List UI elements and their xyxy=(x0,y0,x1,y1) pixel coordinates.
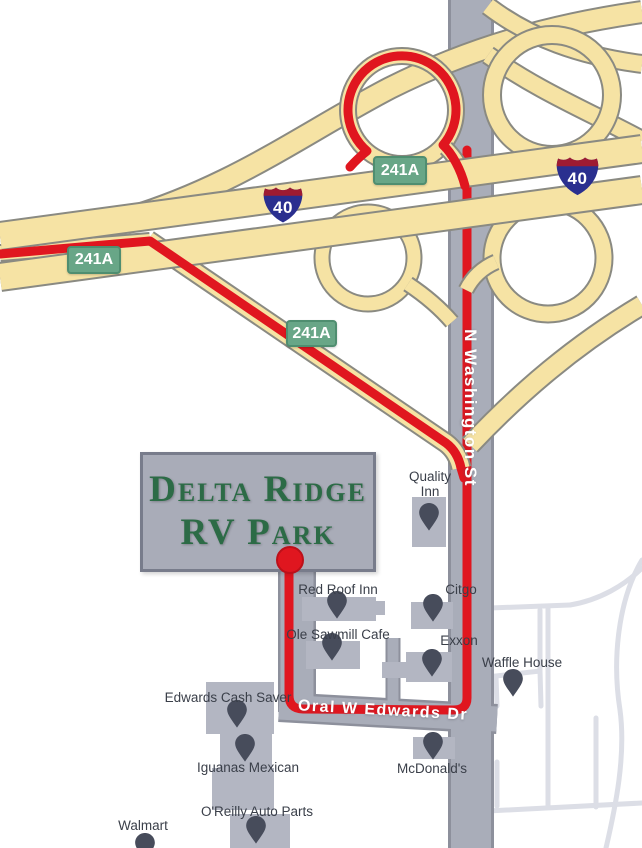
i40-shield-left: 40 xyxy=(263,179,303,224)
i40-shield-right: 40 xyxy=(556,148,599,197)
exit-badge-label: 241A xyxy=(75,252,113,268)
minor-roads xyxy=(488,560,642,848)
i40-shield-number: 40 xyxy=(556,170,599,187)
park-name-line2: RV Park xyxy=(180,512,335,555)
minor-road xyxy=(490,605,570,608)
poi-label-quality-inn: Quality Inn xyxy=(401,469,459,499)
interstate-system xyxy=(0,6,642,468)
poi-label-mcdonalds: McDonald's xyxy=(397,761,467,776)
walmart-pin xyxy=(135,833,155,848)
exit-badge-label: 241A xyxy=(381,163,419,179)
map-canvas: Delta Ridge RV Park 241A 241A 241A 40 40… xyxy=(0,0,642,848)
washington-street-label: N Washington St xyxy=(460,268,480,548)
poi-label-red-roof-inn: Red Roof Inn xyxy=(298,582,378,597)
poi-label-waffle-house: Waffle House xyxy=(482,655,562,670)
park-title-box: Delta Ridge RV Park xyxy=(140,452,376,572)
poi-label-ole-sawmill-cafe: Ole Sawmill Cafe xyxy=(286,627,390,642)
exit-badge-ramp: 241A xyxy=(286,320,337,347)
exit-badge-label: 241A xyxy=(292,326,330,342)
minor-road xyxy=(488,803,642,811)
exxon-annex xyxy=(382,662,406,678)
waffle-house-pin xyxy=(503,669,523,697)
poi-label-citgo: Citgo xyxy=(445,582,477,597)
poi-label-walmart: Walmart xyxy=(118,818,168,833)
road-map-graphic xyxy=(0,0,642,848)
red-roof-inn-annex xyxy=(376,601,385,615)
exit-badge-loop: 241A xyxy=(373,156,427,185)
poi-label-exxon: Exxon xyxy=(440,633,478,648)
se-sweep-ramp xyxy=(470,305,642,445)
exit-badge-west: 241A xyxy=(67,246,121,274)
poi-label-iguanas-mexican: Iguanas Mexican xyxy=(197,760,299,775)
i40-shield-number: 40 xyxy=(263,199,303,216)
poi-label-edwards-cash-saver: Edwards Cash Saver xyxy=(165,690,292,705)
park-name-line1: Delta Ridge xyxy=(149,469,367,512)
poi-label-oreilly-auto-parts: O'Reilly Auto Parts xyxy=(201,804,313,819)
route-endpoint-dot xyxy=(276,546,304,574)
